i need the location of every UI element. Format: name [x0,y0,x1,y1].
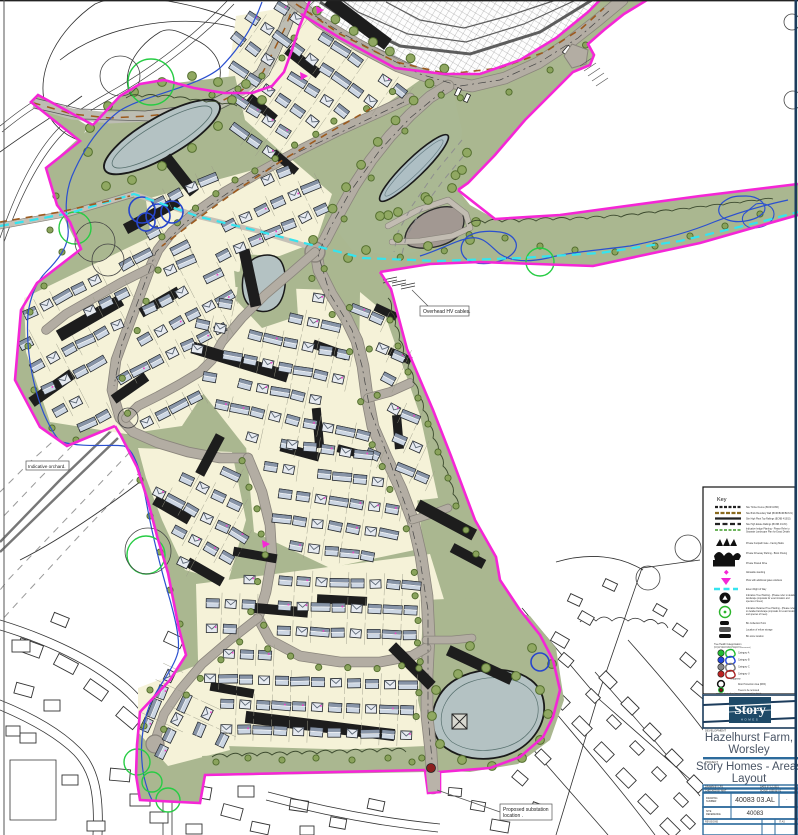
svg-text:Worsley: Worsley [728,744,770,756]
svg-text:Category U: Category U [738,673,750,676]
svg-text:DRAWN BY LPS: DRAWN BY LPS [705,786,723,789]
svg-text:Trees to be removed: Trees to be removed [738,689,760,692]
svg-text:Hazelhurst Farm,: Hazelhurst Farm, [705,732,793,744]
svg-text:Extent Right of Way: Extent Right of Way [746,588,767,591]
svg-text:HOMES: HOMES [741,718,760,722]
svg-text:Location of refuse storage: Location of refuse storage [746,629,773,632]
svg-text:Root Protection Area (RPA): Root Protection Area (RPA) [738,683,766,686]
svg-text:40083: 40083 [747,811,764,817]
svg-text:landscape proposals for exact: landscape proposals for exact location a… [746,597,790,600]
svg-text:species of trees): species of trees) [746,600,763,603]
svg-text:(as per arboricultural impact: (as per arboricultural impact assessment… [714,646,751,649]
svg-text:Tree Health Categorisation: Tree Health Categorisation [714,643,742,646]
svg-text:NUMBER: NUMBER [706,800,717,803]
svg-text:Private Footpath Gate - Facing: Private Footpath Gate - Facing Slabs [746,542,785,545]
svg-text:Indicative Retained Tree Plant: Indicative Retained Tree Planting - (Ple… [746,607,795,610]
svg-text:Plots with additional gates wi: Plots with additional gates windows [746,579,783,582]
svg-text:Private Shared Drive: Private Shared Drive [746,562,768,565]
svg-text:Site Timber Fence (BCIR 4/456): Site Timber Fence (BCIR 4/456) [746,506,779,509]
svg-text:REFERENCE: REFERENCE [706,813,721,816]
svg-text:Hedgerow: Hedgerow [730,678,741,681]
svg-text:Category B: Category B [738,659,750,662]
svg-text:IT AS: IT AS [779,821,785,824]
svg-text:SCALE 1:500 @ A1: SCALE 1:500 @ A1 [760,790,782,793]
svg-text:CHECKED BY MHT: CHECKED BY MHT [705,790,727,793]
svg-text:to detailed landscape proposal: to detailed landscape proposals for exac… [746,610,797,613]
svg-text:Overhead HV cables.: Overhead HV cables. [423,309,471,315]
svg-text:Site Brick Boundary Wall (BCIR: Site Brick Boundary Wall (BCIR/BCIR/BCN.… [746,512,793,515]
svg-text:Bin store location: Bin store location [746,635,764,638]
svg-text:Indicative hedge Planting - Pl: Indicative hedge Planting - Please Refer… [746,528,790,531]
svg-text:REVISIONS: REVISIONS [705,821,718,824]
svg-text:DATE 07.12.2021: DATE 07.12.2021 [760,786,779,789]
svg-text:location .: location . [503,813,523,819]
svg-text:Separate Landscape Plan for Ex: Separate Landscape Plan for Exact Detail… [746,531,791,534]
svg-text:Story Homes - Areas: Story Homes - Areas [696,761,798,773]
svg-text:Layout: Layout [732,773,767,785]
svg-text:Category C: Category C [738,666,750,669]
svg-text:Allowable standing: Allowable standing [746,571,766,574]
svg-text:Private Driveway Parking - Blo: Private Driveway Parking - Block Paving [746,552,788,555]
svg-text:Site High Plant Top Railings (: Site High Plant Top Railings (BCNB 4/100… [746,518,791,521]
svg-text:Site High Estate Railings (BCN: Site High Estate Railings (BCNB 4/1.8C) [746,523,787,526]
svg-text:Category A: Category A [738,652,750,655]
svg-text:Indicative orchard.: Indicative orchard. [28,464,66,469]
svg-text:40083 03.AL: 40083 03.AL [735,797,775,804]
svg-text:Indicative Tree Planting - (Pl: Indicative Tree Planting - (Please refer… [746,594,797,597]
svg-text:and species of trees): and species of trees) [746,613,768,616]
svg-text:Key: Key [717,497,727,503]
svg-text:Bin Collection Point: Bin Collection Point [746,622,766,625]
